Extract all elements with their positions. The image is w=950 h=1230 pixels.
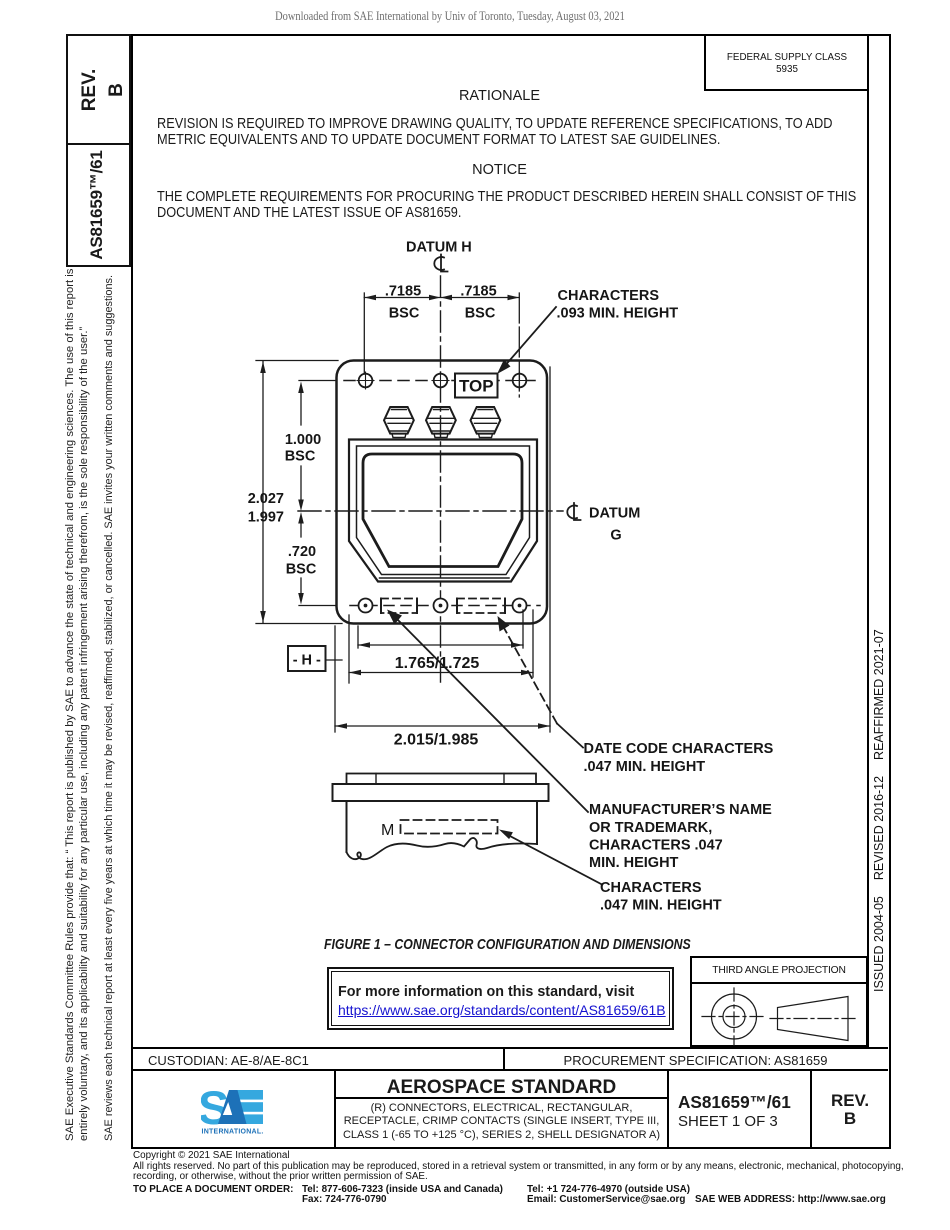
svg-text:DATUM: DATUM — [589, 506, 640, 522]
svg-text:CHARACTERS .047: CHARACTERS .047 — [589, 838, 723, 854]
svg-text:BSC: BSC — [389, 306, 420, 322]
svg-text:MIN. HEIGHT: MIN. HEIGHT — [589, 855, 679, 871]
svg-text:M: M — [381, 822, 394, 839]
svg-text:BSC: BSC — [285, 449, 316, 465]
svg-text:1.000: 1.000 — [285, 432, 321, 448]
svg-text:BSC: BSC — [286, 562, 317, 578]
svg-text:DATUM H: DATUM H — [406, 240, 472, 256]
svg-text:TOP: TOP — [459, 377, 494, 396]
svg-text:.7185: .7185 — [460, 284, 496, 300]
svg-text:1.765/1.725: 1.765/1.725 — [395, 655, 480, 672]
svg-text:.093 MIN. HEIGHT: .093 MIN. HEIGHT — [557, 306, 679, 322]
svg-text:2.015/1.985: 2.015/1.985 — [394, 732, 479, 749]
svg-text:.047 MIN. HEIGHT: .047 MIN. HEIGHT — [600, 898, 722, 914]
svg-text:1.997: 1.997 — [248, 510, 284, 526]
svg-text:G: G — [610, 528, 621, 544]
svg-text:CHARACTERS: CHARACTERS — [558, 288, 660, 304]
svg-text:DATE CODE CHARACTERS: DATE CODE CHARACTERS — [584, 741, 774, 757]
svg-text:BSC: BSC — [465, 306, 496, 322]
svg-text:CHARACTERS: CHARACTERS — [600, 880, 702, 896]
svg-text:.047 MIN. HEIGHT: .047 MIN. HEIGHT — [584, 759, 706, 775]
svg-text:2.027: 2.027 — [248, 491, 284, 507]
svg-text:MANUFACTURER’S NAME: MANUFACTURER’S NAME — [589, 802, 772, 818]
svg-text:OR TRADEMARK,: OR TRADEMARK, — [589, 820, 712, 836]
svg-text:.720: .720 — [288, 544, 316, 560]
svg-text:.7185: .7185 — [385, 284, 421, 300]
svg-text:- H -: - H - — [293, 653, 321, 669]
